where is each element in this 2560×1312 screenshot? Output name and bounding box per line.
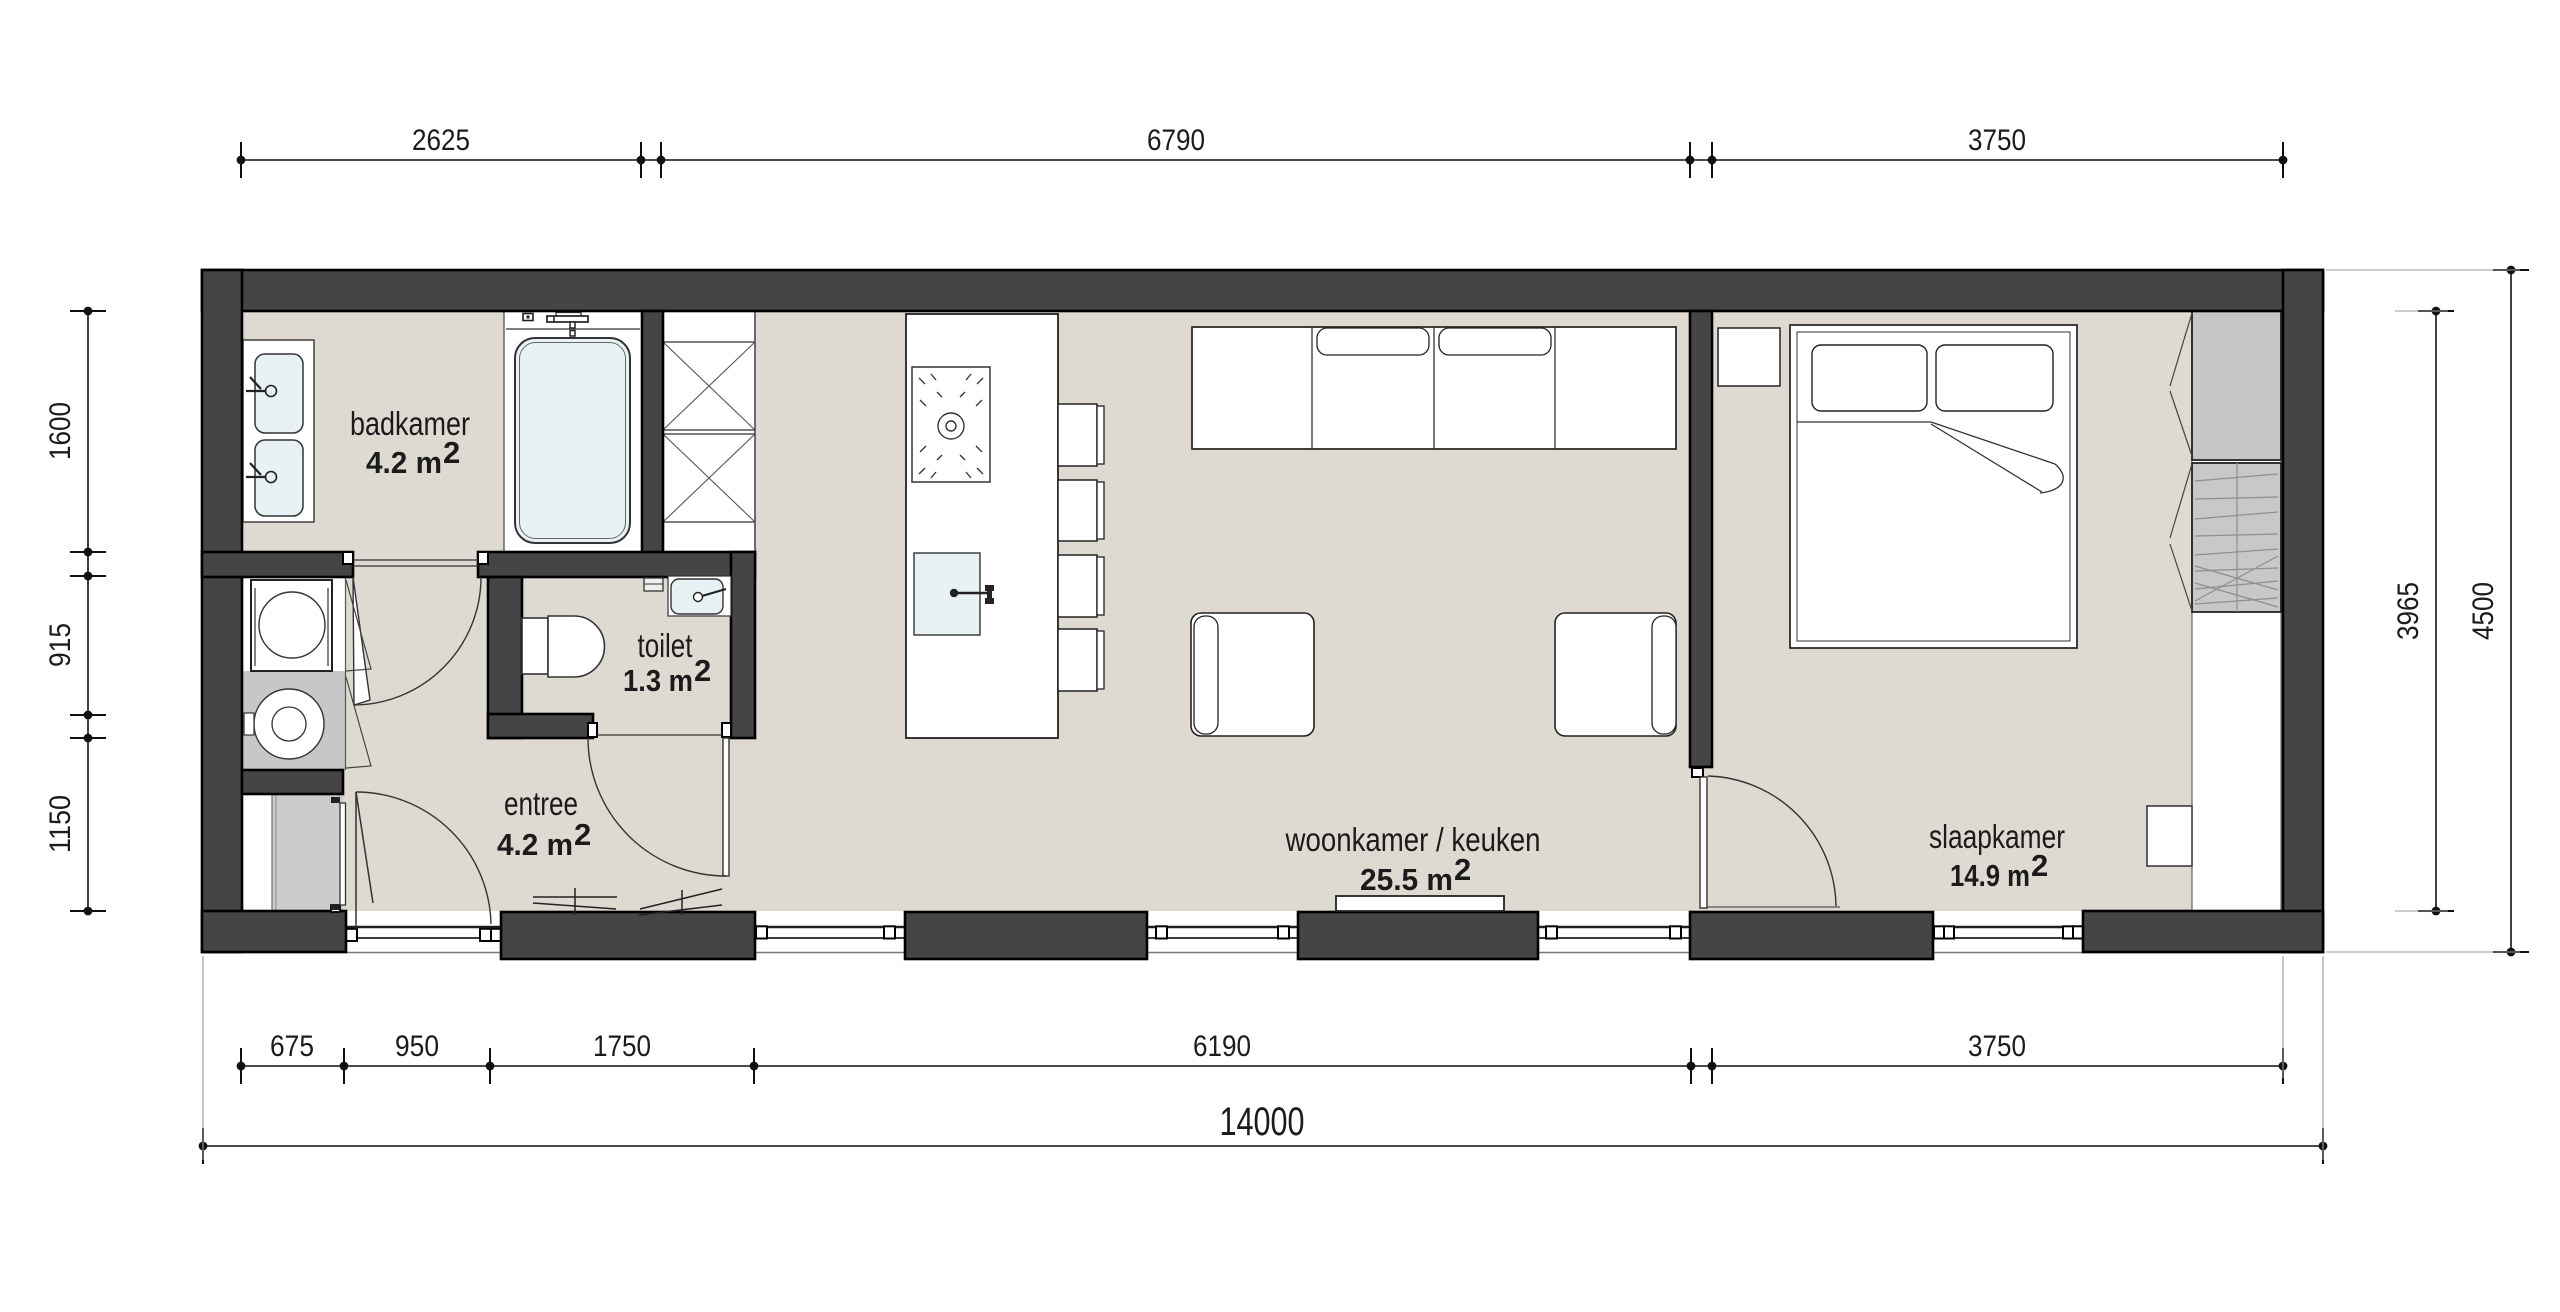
- svg-text:1150: 1150: [44, 795, 77, 853]
- svg-text:3750: 3750: [1968, 124, 2026, 157]
- svg-text:woonkamer / keuken: woonkamer / keuken: [1285, 821, 1541, 858]
- svg-text:915: 915: [44, 623, 77, 667]
- svg-text:4.2 m: 4.2 m: [366, 445, 442, 480]
- svg-text:14000: 14000: [1220, 1100, 1305, 1144]
- svg-text:entree: entree: [504, 785, 578, 822]
- svg-text:2: 2: [694, 653, 711, 688]
- svg-text:950: 950: [395, 1030, 439, 1063]
- svg-text:4500: 4500: [2467, 582, 2500, 640]
- svg-text:3750: 3750: [1968, 1030, 2026, 1063]
- svg-text:675: 675: [270, 1030, 314, 1063]
- svg-text:4.2 m: 4.2 m: [497, 827, 573, 862]
- svg-text:2625: 2625: [412, 124, 470, 157]
- svg-text:toilet: toilet: [638, 627, 693, 664]
- svg-text:2: 2: [1454, 852, 1471, 887]
- svg-text:1600: 1600: [44, 402, 77, 460]
- svg-text:1750: 1750: [593, 1030, 651, 1063]
- svg-text:6190: 6190: [1193, 1030, 1251, 1063]
- svg-text:3965: 3965: [2392, 582, 2425, 640]
- svg-text:2: 2: [2031, 848, 2048, 883]
- svg-text:2: 2: [443, 435, 460, 470]
- svg-text:2: 2: [574, 817, 591, 852]
- svg-text:25.5 m: 25.5 m: [1360, 862, 1453, 897]
- svg-text:14.9 m: 14.9 m: [1950, 858, 2030, 893]
- svg-text:6790: 6790: [1147, 124, 1205, 157]
- svg-text:1.3 m: 1.3 m: [623, 663, 693, 698]
